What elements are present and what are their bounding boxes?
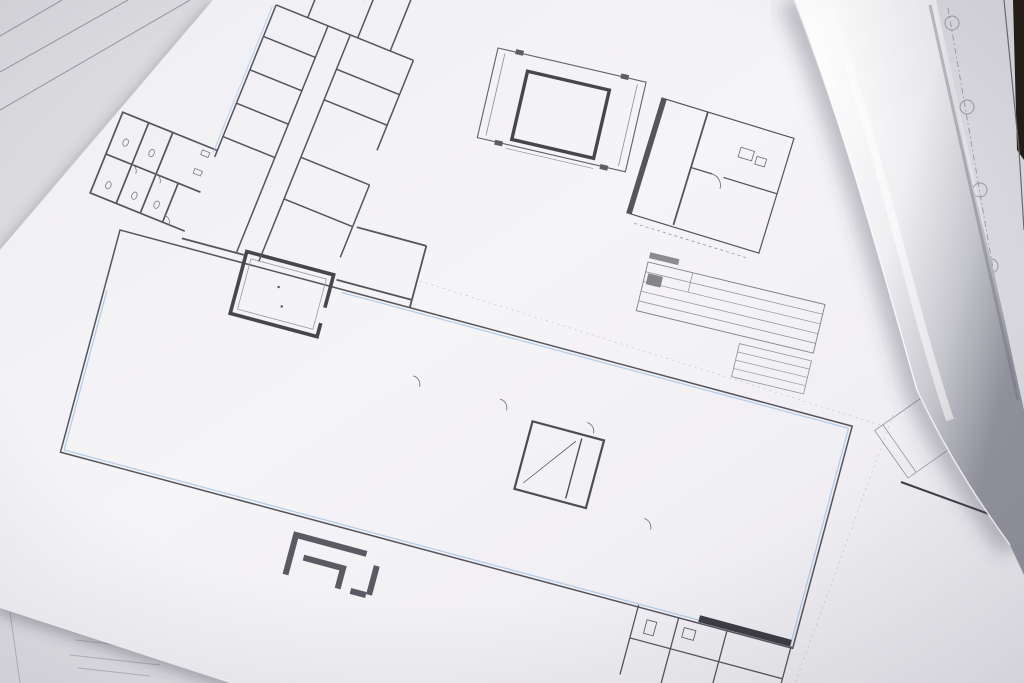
blueprint-photo <box>0 0 1024 683</box>
blueprint-scene <box>0 0 1024 683</box>
vignette-overlay <box>0 0 1024 683</box>
